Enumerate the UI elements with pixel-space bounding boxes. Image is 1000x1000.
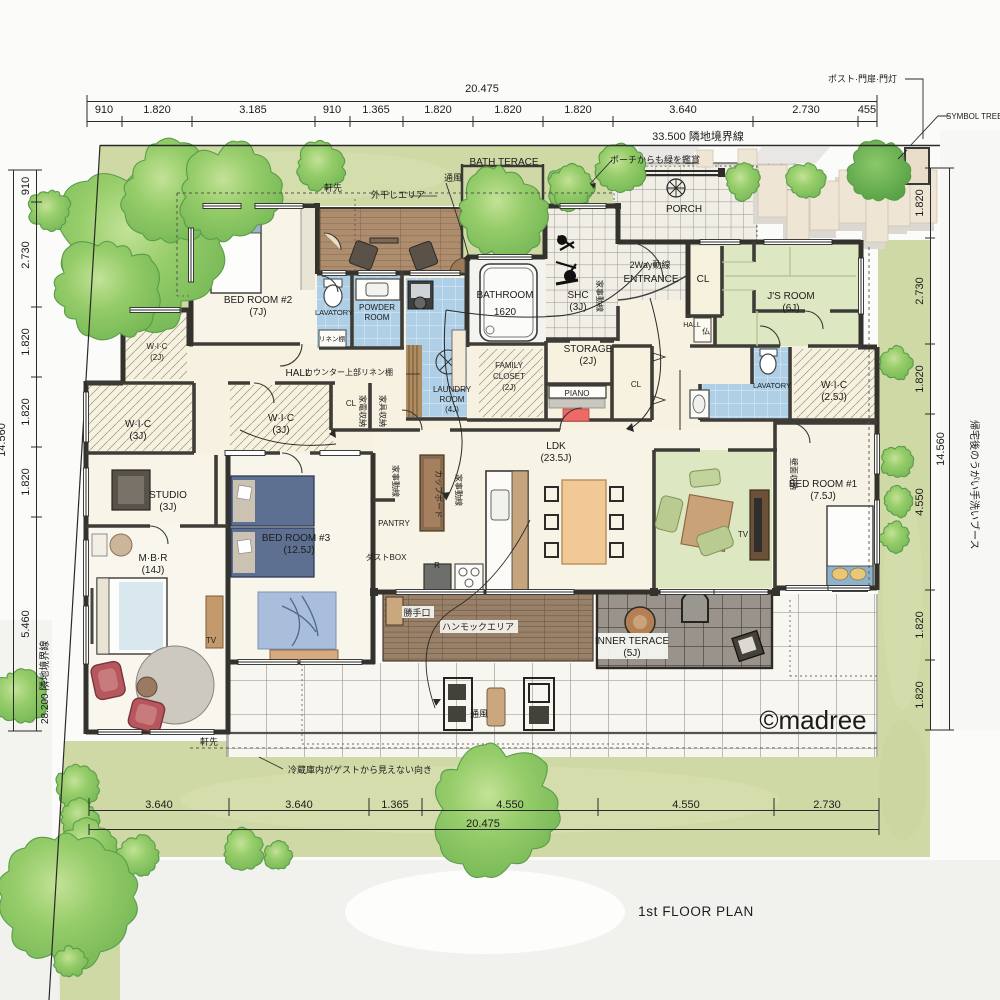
svg-text:(14J): (14J) bbox=[142, 565, 165, 576]
svg-text:3.640: 3.640 bbox=[669, 104, 697, 116]
svg-text:カップボード: カップボード bbox=[434, 470, 443, 518]
svg-text:BATHROOM: BATHROOM bbox=[476, 290, 533, 301]
svg-text:SHC: SHC bbox=[567, 290, 588, 301]
svg-text:TV: TV bbox=[738, 530, 749, 539]
svg-text:ROOM: ROOM bbox=[365, 313, 390, 322]
svg-text:1.820: 1.820 bbox=[914, 365, 926, 393]
svg-text:910: 910 bbox=[95, 104, 113, 116]
svg-text:5.460: 5.460 bbox=[20, 610, 32, 638]
svg-text:1.820: 1.820 bbox=[20, 398, 32, 426]
svg-text:20.475: 20.475 bbox=[466, 818, 500, 830]
svg-text:W·I·C: W·I·C bbox=[125, 419, 151, 430]
svg-text:帰宅後のうがい手洗いブース: 帰宅後のうがい手洗いブース bbox=[968, 420, 981, 550]
svg-text:PORCH: PORCH bbox=[666, 204, 702, 215]
svg-text:CL: CL bbox=[697, 274, 710, 285]
svg-text:通風: 通風 bbox=[470, 709, 488, 719]
svg-text:(3J): (3J) bbox=[129, 431, 146, 442]
svg-text:1.820: 1.820 bbox=[494, 104, 522, 116]
svg-text:カウンター上部リネン棚: カウンター上部リネン棚 bbox=[305, 367, 393, 377]
svg-text:28.200 隣地境界線: 28.200 隣地境界線 bbox=[38, 641, 51, 724]
svg-text:2Way動線: 2Way動線 bbox=[630, 259, 671, 270]
svg-text:LAVATORY: LAVATORY bbox=[753, 381, 791, 390]
svg-text:PANTRY: PANTRY bbox=[378, 519, 410, 528]
svg-text:1.365: 1.365 bbox=[362, 104, 390, 116]
svg-text:(2J): (2J) bbox=[150, 353, 164, 362]
svg-text:家事動線: 家事動線 bbox=[595, 280, 605, 312]
svg-text:1.820: 1.820 bbox=[424, 104, 452, 116]
svg-text:LDK: LDK bbox=[546, 441, 566, 452]
svg-text:(12.5J): (12.5J) bbox=[283, 545, 314, 556]
svg-text:14.560: 14.560 bbox=[0, 423, 8, 457]
svg-text:家具収納: 家具収納 bbox=[378, 395, 388, 427]
svg-text:ポスト·門扉·門灯: ポスト·門扉·門灯 bbox=[828, 73, 897, 84]
svg-text:(2.5J): (2.5J) bbox=[821, 392, 847, 403]
svg-text:2.730: 2.730 bbox=[792, 104, 820, 116]
svg-text:INNER TERACE: INNER TERACE bbox=[595, 636, 670, 647]
svg-text:家事動線: 家事動線 bbox=[391, 465, 401, 497]
svg-text:POWDER: POWDER bbox=[359, 303, 395, 312]
svg-text:1.820: 1.820 bbox=[20, 468, 32, 496]
svg-text:BED ROOM #2: BED ROOM #2 bbox=[224, 295, 293, 306]
svg-text:STORAGE: STORAGE bbox=[564, 344, 613, 355]
svg-text:W·I·C: W·I·C bbox=[821, 380, 847, 391]
svg-text:仏: 仏 bbox=[702, 327, 710, 336]
svg-text:20.475: 20.475 bbox=[465, 83, 499, 95]
svg-text:1.365: 1.365 bbox=[381, 799, 409, 811]
svg-text:ダストBOX: ダストBOX bbox=[366, 552, 408, 562]
svg-text:1st FLOOR PLAN: 1st FLOOR PLAN bbox=[638, 904, 754, 919]
svg-text:2.730: 2.730 bbox=[813, 799, 841, 811]
svg-text:通風: 通風 bbox=[444, 173, 462, 183]
svg-text:3.185: 3.185 bbox=[239, 104, 267, 116]
svg-text:J'S ROOM: J'S ROOM bbox=[767, 291, 814, 302]
svg-text:軒先: 軒先 bbox=[200, 736, 218, 747]
svg-text:BED ROOM #3: BED ROOM #3 bbox=[262, 533, 331, 544]
svg-text:4.550: 4.550 bbox=[914, 488, 926, 516]
svg-text:(6J): (6J) bbox=[782, 303, 799, 314]
svg-text:FAMILY: FAMILY bbox=[495, 361, 524, 370]
svg-text:TV: TV bbox=[206, 636, 217, 645]
svg-text:1.820: 1.820 bbox=[20, 328, 32, 356]
svg-text:(2J): (2J) bbox=[579, 356, 596, 367]
svg-text:(7.5J): (7.5J) bbox=[810, 491, 836, 502]
svg-text:CLOSET: CLOSET bbox=[493, 372, 525, 381]
svg-text:3.640: 3.640 bbox=[145, 799, 173, 811]
svg-text:1.820: 1.820 bbox=[143, 104, 171, 116]
svg-text:910: 910 bbox=[20, 177, 32, 195]
svg-text:3.640: 3.640 bbox=[285, 799, 313, 811]
svg-text:1.820: 1.820 bbox=[914, 611, 926, 639]
svg-text:CL: CL bbox=[631, 380, 642, 389]
svg-text:SYMBOL TREE: SYMBOL TREE bbox=[946, 112, 1000, 121]
svg-text:2.730: 2.730 bbox=[914, 277, 926, 305]
svg-text:外干しエリア: 外干しエリア bbox=[371, 189, 425, 200]
svg-text:BED ROOM #1: BED ROOM #1 bbox=[789, 479, 858, 490]
svg-text:LAVATORY: LAVATORY bbox=[315, 308, 353, 317]
svg-text:1.820: 1.820 bbox=[564, 104, 592, 116]
svg-text:W·I·C: W·I·C bbox=[147, 342, 168, 351]
svg-text:R: R bbox=[434, 561, 440, 570]
svg-text:家電収納: 家電収納 bbox=[358, 395, 368, 427]
svg-text:壁面収納: 壁面収納 bbox=[789, 458, 799, 490]
svg-text:33.500 隣地境界線: 33.500 隣地境界線 bbox=[652, 129, 744, 143]
svg-text:4.550: 4.550 bbox=[496, 799, 524, 811]
svg-text:©madree: ©madree bbox=[759, 705, 866, 735]
svg-text:冷蔵庫内がゲストから見えない向き: 冷蔵庫内がゲストから見えない向き bbox=[288, 764, 432, 775]
svg-text:CL: CL bbox=[346, 399, 357, 408]
svg-text:ポーチからも緑を鑑賞: ポーチからも緑を鑑賞 bbox=[610, 154, 700, 165]
svg-text:(7J): (7J) bbox=[249, 307, 266, 318]
svg-text:軒先: 軒先 bbox=[324, 182, 342, 193]
svg-text:(2J): (2J) bbox=[502, 383, 516, 392]
svg-text:910: 910 bbox=[323, 104, 341, 116]
svg-text:1.820: 1.820 bbox=[914, 189, 926, 217]
svg-text:ハンモックエリア: ハンモックエリア bbox=[442, 622, 514, 632]
svg-text:STUDIO: STUDIO bbox=[149, 490, 187, 501]
svg-text:HALL: HALL bbox=[683, 322, 701, 329]
svg-text:W·I·C: W·I·C bbox=[268, 413, 294, 424]
svg-text:(5J): (5J) bbox=[623, 648, 640, 659]
svg-text:LAUNDRY: LAUNDRY bbox=[433, 385, 472, 394]
svg-text:(3J): (3J) bbox=[272, 425, 289, 436]
svg-text:1.820: 1.820 bbox=[914, 681, 926, 709]
svg-text:(23.5J): (23.5J) bbox=[540, 453, 571, 464]
svg-text:(3J): (3J) bbox=[569, 302, 586, 313]
svg-text:2.730: 2.730 bbox=[20, 241, 32, 269]
svg-text:BATH TERACE: BATH TERACE bbox=[469, 157, 538, 168]
svg-text:リネン棚: リネン棚 bbox=[319, 334, 346, 343]
svg-text:14.560: 14.560 bbox=[935, 432, 947, 466]
svg-text:M·B·R: M·B·R bbox=[139, 553, 168, 564]
svg-text:(3J): (3J) bbox=[159, 502, 176, 513]
svg-text:455: 455 bbox=[858, 104, 876, 116]
svg-text:勝手口: 勝手口 bbox=[403, 607, 430, 618]
svg-text:4.550: 4.550 bbox=[672, 799, 700, 811]
svg-text:PIANO: PIANO bbox=[565, 389, 590, 398]
